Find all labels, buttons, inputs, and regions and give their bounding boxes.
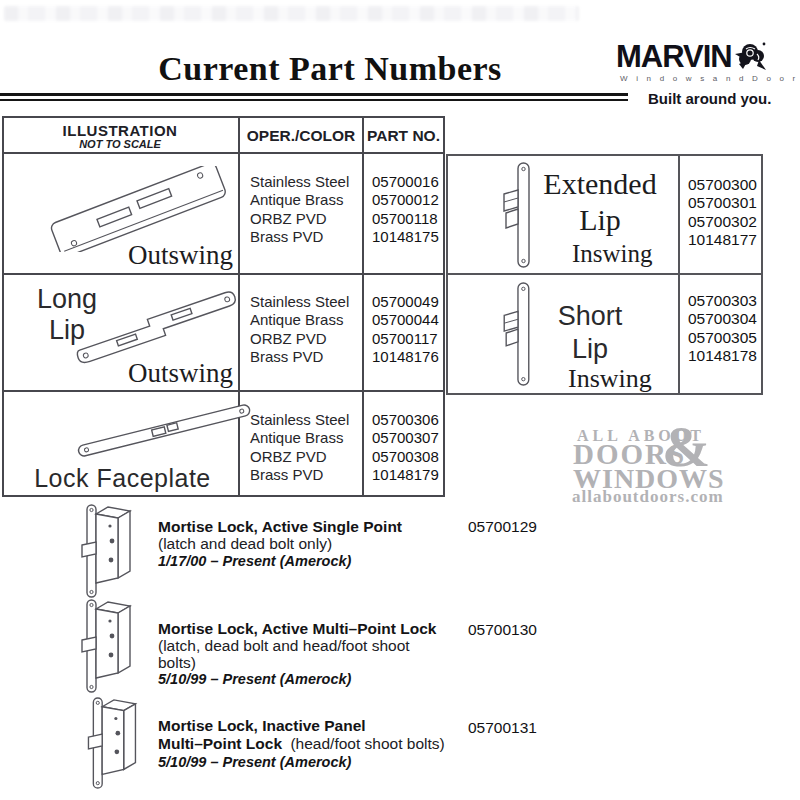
col-header-part-no: PART NO. (362, 127, 445, 145)
part-number: 05700301 (688, 194, 757, 212)
right-row2-name-label: Short Lip (520, 300, 660, 366)
color-option: Stainless Steel (250, 293, 349, 311)
part-number: 05700012 (372, 191, 439, 209)
item3-title: Mortise Lock, Inactive Panel (158, 717, 366, 735)
part-number: 05700016 (372, 173, 439, 191)
mortise-lock-icon (76, 503, 132, 599)
right-row1-name-line1: Extended (520, 166, 680, 202)
row3-name-label: Lock Faceplate (25, 464, 220, 493)
mortise-lock-icon (82, 696, 138, 790)
brand-name: MARVIN (616, 42, 732, 72)
part-number: 05700307 (372, 429, 439, 447)
item1-date: 1/17/00 – Present (Amerock) (158, 553, 351, 569)
marvin-logo: MARVIN W i n d o w s a n d D (616, 42, 800, 107)
part-number: 05700304 (688, 310, 757, 328)
row2-part-numbers: 05700049 05700044 05700117 10148176 (372, 293, 439, 367)
row1-color-options: Stainless Steel Antique Brass ORBZ PVD B… (250, 173, 349, 247)
page-title: Current Part Numbers (110, 50, 550, 88)
row3-color-options: Stainless Steel Antique Brass ORBZ PVD B… (250, 411, 349, 485)
row3-part-numbers: 05700306 05700307 05700308 10148179 (372, 411, 439, 485)
part-number: 05700049 (372, 293, 439, 311)
brand-tagline: Built around you. (648, 90, 800, 107)
item3-part-number: 05700131 (468, 719, 537, 737)
item1-title: Mortise Lock, Active Single Point (158, 518, 402, 536)
color-option: ORBZ PVD (250, 210, 349, 228)
col-header-oper-color: OPER./COLOR (240, 127, 362, 145)
col-header-not-to-scale: NOT TO SCALE (2, 138, 238, 150)
part-number: 05700308 (372, 448, 439, 466)
item3-title-line2: Multi–Point Lock (head/foot shoot bolts) (158, 735, 445, 753)
part-number: 05700300 (688, 176, 757, 194)
right-row2-part-numbers: 05700303 05700304 05700305 10148178 (688, 292, 757, 366)
color-option: Antique Brass (250, 191, 349, 209)
title-rule-thick (0, 93, 628, 96)
right-row2-name-line2: Lip (520, 333, 660, 366)
color-option: Brass PVD (250, 466, 349, 484)
item2-desc-line2: bolts) (158, 654, 196, 672)
color-option: Brass PVD (250, 228, 349, 246)
col-header-illustration: ILLUSTRATION (2, 122, 238, 139)
catalog-page: Current Part Numbers MARVIN (0, 0, 800, 800)
part-number: 05700306 (372, 411, 439, 429)
right-row1-swing-label: Inswing (572, 240, 653, 268)
part-number: 05700303 (688, 292, 757, 310)
part-number: 05700044 (372, 311, 439, 329)
row1-swing-label: Outswing (128, 240, 233, 271)
brand-subtitle: W i n d o w s a n d D o o r s (620, 74, 800, 83)
right-row1-name-label: Extended Lip (520, 166, 680, 238)
row-divider (448, 273, 761, 275)
row2-color-options: Stainless Steel Antique Brass ORBZ PVD B… (250, 293, 349, 367)
part-number: 10148178 (688, 347, 757, 365)
item1-desc: (latch and dead bolt only) (158, 535, 332, 553)
item2-title: Mortise Lock, Active Multi–Point Lock (158, 620, 436, 638)
item2-desc: (latch, dead bolt and head/foot shoot (158, 637, 410, 655)
item2-date: 5/10/99 – Present (Amerock) (158, 671, 351, 687)
part-number: 10148175 (372, 228, 439, 246)
row-divider (4, 273, 443, 275)
part-number: 05700117 (372, 330, 439, 348)
watermark-url: allaboutdoors.com (572, 487, 724, 507)
title-rule-thin (0, 99, 628, 101)
marvin-flower-icon (733, 40, 767, 72)
long-lip-plate-icon (62, 284, 250, 368)
right-row1-name-line2: Lip (520, 202, 680, 238)
right-row2-swing-label: Inswing (568, 364, 652, 394)
row2-swing-label: Outswing (128, 358, 233, 389)
right-row1-part-numbers: 05700300 05700301 05700302 10148177 (688, 176, 757, 250)
color-option: Brass PVD (250, 348, 349, 366)
lock-faceplate-icon (68, 396, 260, 464)
color-option: Stainless Steel (250, 411, 349, 429)
scan-ghost-artifact (4, 6, 579, 21)
item3-title2-bold: Multi–Point Lock (158, 735, 282, 752)
color-option: Antique Brass (250, 311, 349, 329)
right-row2-name-line1: Short (520, 300, 660, 333)
row-divider (4, 152, 443, 154)
color-option: Antique Brass (250, 429, 349, 447)
item2-part-number: 05700130 (468, 621, 537, 639)
mortise-lock-icon (76, 598, 132, 694)
item1-part-number: 05700129 (468, 518, 537, 536)
part-number: 10148179 (372, 466, 439, 484)
part-number: 05700118 (372, 210, 439, 228)
color-option: ORBZ PVD (250, 330, 349, 348)
part-number: 05700305 (688, 329, 757, 347)
color-option: Stainless Steel (250, 173, 349, 191)
part-number: 05700302 (688, 213, 757, 231)
item3-desc-inline: (head/foot shoot bolts) (290, 735, 444, 752)
column-divider (362, 118, 364, 495)
item3-date: 5/10/99 – Present (Amerock) (158, 754, 351, 770)
row1-part-numbers: 05700016 05700012 05700118 10148175 (372, 173, 439, 247)
part-number: 10148177 (688, 231, 757, 249)
part-number: 10148176 (372, 348, 439, 366)
row-divider (4, 390, 443, 392)
color-option: ORBZ PVD (250, 448, 349, 466)
